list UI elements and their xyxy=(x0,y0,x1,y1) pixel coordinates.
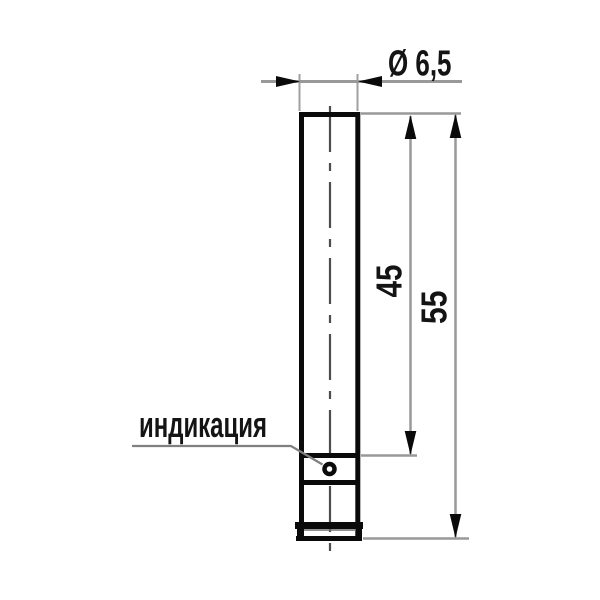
svg-text:Ø 6,5: Ø 6,5 xyxy=(388,43,452,84)
svg-text:55: 55 xyxy=(414,291,455,325)
svg-text:индикация: индикация xyxy=(139,404,267,445)
svg-text:45: 45 xyxy=(369,265,410,298)
